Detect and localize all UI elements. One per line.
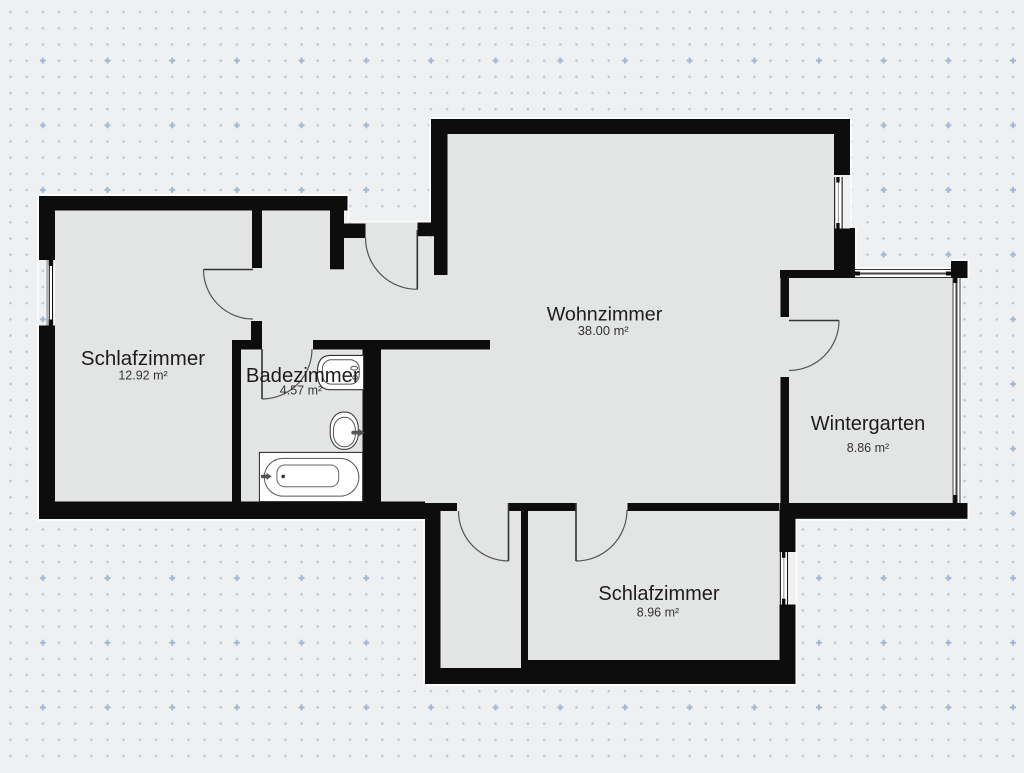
svg-text:8.86 m²: 8.86 m² — [847, 441, 889, 455]
svg-text:Wintergarten: Wintergarten — [811, 413, 926, 435]
svg-text:8.96 m²: 8.96 m² — [637, 606, 679, 620]
svg-text:Schlafzimmer: Schlafzimmer — [598, 583, 719, 605]
svg-text:Schlafzimmer: Schlafzimmer — [81, 347, 205, 370]
svg-text:38.00 m²: 38.00 m² — [578, 323, 630, 338]
svg-text:4.57 m²: 4.57 m² — [280, 384, 322, 398]
svg-text:12.92 m²: 12.92 m² — [118, 369, 167, 383]
